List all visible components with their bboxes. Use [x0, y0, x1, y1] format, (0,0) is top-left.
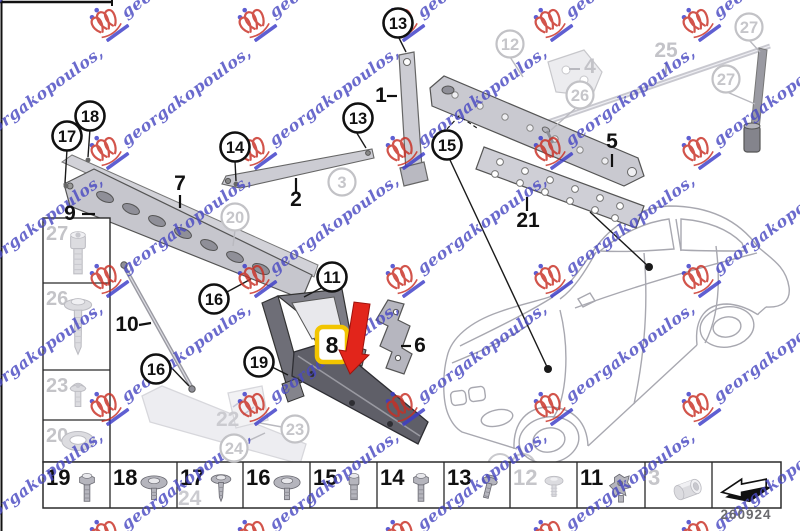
watermark-unit: georgakopoulos,	[85, 0, 257, 44]
watermark-unit: georgakopoulos,	[233, 0, 405, 44]
watermark-text: georgakopoulos,	[709, 171, 800, 278]
part-label-10: 10	[115, 313, 138, 336]
strut-part1	[399, 52, 428, 186]
watermark-unit: georgakopoulos,	[529, 289, 701, 428]
crest-icon	[694, 136, 711, 155]
crest-icon	[102, 520, 119, 531]
crest-icon	[686, 138, 705, 159]
part-label-7: 7	[174, 172, 186, 195]
svg-text:12: 12	[501, 36, 519, 54]
diagram-canvas: 272623201918171615141312113 georgakopoul…	[0, 0, 800, 531]
callout-3: 3	[329, 169, 356, 196]
crest-icon	[694, 264, 711, 283]
watermark-text: georgakopoulos,	[413, 299, 550, 406]
crest-icon	[686, 266, 705, 287]
callout-27: 27	[736, 14, 763, 41]
legend-number-16: 16	[246, 465, 270, 490]
crest-icon	[250, 136, 267, 155]
watermark-unit: georgakopoulos,	[529, 0, 701, 44]
watermark-text: georgakopoulos,	[117, 0, 254, 22]
callout-14: 14	[221, 133, 250, 162]
ghost-label-24: 24	[178, 487, 202, 510]
svg-text:13: 13	[389, 15, 407, 33]
part-label-25: 25	[654, 39, 678, 62]
svg-text:27: 27	[717, 71, 735, 89]
ghost-label-22: 22	[216, 408, 239, 431]
callout-11: 11	[318, 263, 347, 292]
callout-16: 16	[142, 355, 171, 384]
svg-text:18: 18	[81, 108, 99, 126]
callout-26: 26	[567, 82, 594, 109]
part-label-5: 5	[606, 130, 618, 153]
svg-text:20: 20	[226, 209, 244, 227]
callout-13: 13	[384, 9, 413, 38]
highlight-number: 8	[326, 332, 339, 358]
crest-icon	[686, 394, 705, 415]
part-label-2: 2	[290, 188, 302, 211]
callout-24: 24	[221, 435, 248, 462]
crest-icon	[694, 8, 711, 27]
callout-27: 27	[713, 66, 740, 93]
callout-23: 23	[282, 416, 309, 443]
svg-text:15: 15	[438, 137, 456, 155]
crest-icon	[242, 10, 261, 31]
crest-icon	[94, 138, 113, 159]
part-label-21: 21	[516, 209, 540, 232]
crest-icon	[546, 264, 563, 283]
crest-icon	[538, 394, 557, 415]
svg-text:19: 19	[250, 354, 268, 372]
svg-text:26: 26	[571, 87, 589, 105]
callout-13: 13	[344, 104, 373, 133]
svg-text:27: 27	[740, 19, 758, 37]
left-column-number-23: 23	[46, 375, 68, 397]
legend-number-18: 18	[113, 465, 137, 490]
legend-number-14: 14	[380, 465, 405, 490]
crest-icon	[538, 266, 557, 287]
svg-text:23: 23	[286, 421, 304, 439]
watermark-unit: georgakopoulos,	[0, 0, 110, 44]
svg-text:3: 3	[337, 174, 346, 192]
part-label-6: 6	[414, 334, 426, 357]
part-label-4: 4	[584, 55, 596, 78]
fastener-dot	[64, 184, 69, 189]
crest-icon	[694, 392, 711, 411]
crest-icon	[94, 10, 113, 31]
crest-icon	[694, 520, 711, 531]
callout-20: 20	[222, 204, 249, 231]
grille-kidney	[468, 386, 486, 402]
watermark-text: georgakopoulos,	[561, 0, 698, 22]
crest-icon	[102, 136, 119, 155]
fastener-dot	[86, 158, 91, 163]
bmw-front-panel-parts-diagram: 272623201918171615141312113 georgakopoul…	[0, 0, 800, 531]
crest-icon	[546, 520, 563, 531]
watermark-text: georgakopoulos,	[709, 299, 800, 406]
crest-icon	[398, 520, 415, 531]
callout-15: 15	[433, 131, 462, 160]
svg-text:17: 17	[58, 128, 76, 146]
callout-19: 19	[245, 348, 274, 377]
callout-16: 16	[200, 285, 229, 314]
svg-text:16: 16	[205, 291, 223, 309]
crest-icon	[546, 8, 563, 27]
crest-icon	[250, 8, 267, 27]
watermark-text: georgakopoulos,	[265, 0, 402, 22]
legend-number-11: 11	[580, 465, 603, 490]
callout-17: 17	[53, 122, 82, 151]
legend-number-12: 12	[513, 465, 537, 490]
crest-icon	[102, 8, 119, 27]
crest-icon	[686, 10, 705, 31]
crest-icon	[390, 266, 409, 287]
callout-12: 12	[497, 31, 524, 58]
svg-text:11: 11	[323, 269, 340, 287]
crest-icon	[398, 264, 415, 283]
part-label-9: 9	[64, 202, 76, 225]
diagram-code: 260924	[720, 507, 771, 522]
watermark-text: georgakopoulos,	[561, 299, 698, 406]
grille-kidney	[450, 390, 467, 406]
svg-text:14: 14	[226, 139, 245, 157]
headlight	[480, 407, 515, 429]
svg-text:13: 13	[349, 110, 367, 128]
crest-icon	[250, 520, 267, 531]
svg-text:24: 24	[225, 440, 244, 458]
svg-text:16: 16	[147, 361, 165, 379]
callout-18: 18	[76, 102, 105, 131]
watermark-text: georgakopoulos,	[413, 0, 550, 22]
part-label-1: 1	[375, 84, 387, 107]
crest-icon	[538, 10, 557, 31]
